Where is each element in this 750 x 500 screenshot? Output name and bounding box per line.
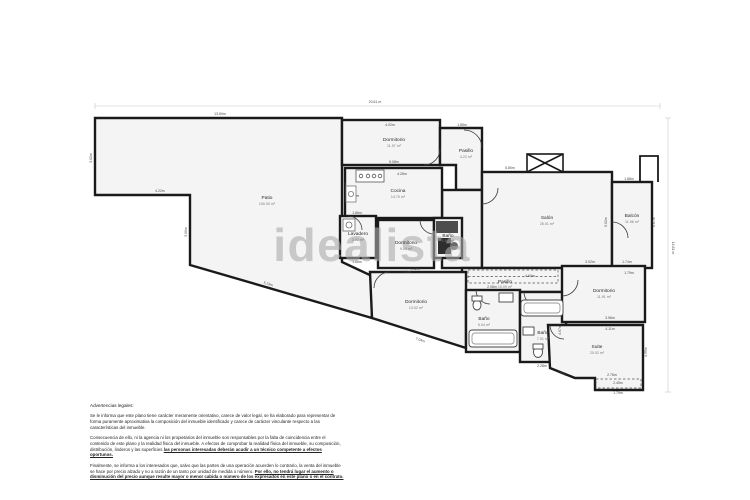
dim-label: 2.76m — [607, 373, 617, 377]
label-suite: Suite — [592, 344, 603, 350]
room-pasillo-top — [440, 128, 482, 190]
dim-label: 1.79m — [624, 271, 634, 275]
dim-label: 1.66m — [352, 260, 362, 264]
label-pasillo-top: Pasillo — [459, 148, 473, 154]
area-bano-right: 7.01 m² — [537, 337, 550, 341]
dim-label: 4.11m — [605, 327, 615, 331]
area-patio: 100.00 m² — [259, 202, 276, 206]
label-salon: Salón — [541, 215, 554, 221]
area-salon: 26.01 m² — [540, 222, 555, 226]
area-lavadero: 3.02 m² — [352, 238, 365, 242]
dim-label: 13.60m — [214, 112, 226, 116]
area-suite: 20.02 m² — [590, 351, 605, 355]
area-dormitorio-center: 9.54 m² — [400, 247, 413, 251]
room-suite — [548, 325, 643, 390]
area-balcon: 11.96 m² — [625, 220, 640, 224]
dim-label: 1.86m — [352, 211, 362, 215]
dim-label: 1.74m — [622, 260, 632, 264]
area-cocina: 14.70 m² — [391, 195, 406, 199]
dim-label: 4.22m — [155, 189, 165, 193]
room-patio — [95, 118, 372, 318]
area-bano-center: 1.97 m² — [442, 239, 455, 243]
label-balcon: Balcón — [625, 213, 640, 219]
dim-label: 6.67m — [652, 217, 656, 227]
label-patio: Patio — [262, 195, 273, 201]
dim-label: 1.85m — [457, 123, 467, 127]
idealista-watermark: idealista — [273, 219, 471, 271]
stove-icon — [356, 170, 384, 182]
area-dormitorio-bl: 13.02 m² — [409, 306, 424, 310]
dim-label: 4.60m — [525, 274, 535, 278]
label-dormitorio-top: Dormitorio — [383, 137, 405, 143]
dim-label: 2.45m — [613, 381, 623, 385]
dim-label: 4.67m — [558, 325, 562, 335]
floorplan-page: idealista Patio 100.00 m² Dormitorio 11.… — [0, 0, 750, 500]
dim-label: 4.42m — [410, 267, 420, 271]
label-bano-right: Baño — [537, 330, 549, 336]
area-pasillo-lower: 10.09 m² — [498, 285, 513, 289]
dim-label: 3.02m — [585, 260, 595, 264]
legal-paragraph: Se le informa que este plano tiene carác… — [90, 413, 345, 430]
dim-label: 2.08m — [487, 285, 497, 289]
label-dormitorio-bl: Dormitorio — [405, 299, 427, 305]
shaft-symbol — [527, 154, 563, 172]
dim-label: 1.79m — [613, 391, 623, 395]
dim-label: 3.96m — [605, 316, 615, 320]
legal-paragraph: Consecuencia de ello, ni la agencia ni l… — [90, 435, 345, 458]
dim-overall-top: 20.61 m — [369, 100, 382, 104]
dim-label: 3.02m — [89, 153, 93, 163]
dim-label: 5.08m — [389, 160, 399, 164]
label-dormitorio-center: Dormitorio — [395, 240, 417, 246]
dim-label: 1.88m — [624, 177, 634, 181]
dim-label: 5.02m — [604, 217, 608, 227]
dim-label: 2.28m — [537, 364, 547, 368]
room-pasillo-lower — [462, 268, 565, 292]
area-dormitorio-right: 11.91 m² — [597, 295, 612, 299]
room-balcon — [612, 182, 652, 268]
legal-heading: Advertencias legales: — [90, 403, 345, 409]
legal-disclaimer: Advertencias legales: Se le informa que … — [90, 403, 345, 485]
dim-label: 7.04m — [415, 337, 426, 344]
dim-label: 5.80m — [505, 166, 515, 170]
label-dormitorio-right: Dormitorio — [593, 288, 615, 294]
label-bano-left: Baño — [478, 316, 490, 322]
dim-label: 4.02m — [385, 123, 395, 127]
dim-label: 3.00m — [184, 227, 188, 237]
label-cocina: Cocina — [391, 188, 406, 194]
building-step-outline — [640, 156, 658, 182]
dim-label: 4.26m — [397, 172, 407, 176]
kitchen-sink-icon — [346, 186, 356, 202]
area-dormitorio-top: 11.97 m² — [387, 144, 402, 148]
legal-text: Se le informa que este plano tiene carác… — [90, 413, 335, 430]
label-lavadero: Lavadero — [348, 231, 368, 237]
legal-paragraph: Finalmente, se informa a los interesados… — [90, 463, 345, 480]
area-bano-left: 5.04 m² — [478, 323, 491, 327]
dim-label: 4.99m — [644, 347, 648, 357]
area-pasillo-top: 4.22 m² — [460, 155, 473, 159]
dim-overall-right: 14.81 m — [671, 242, 675, 255]
